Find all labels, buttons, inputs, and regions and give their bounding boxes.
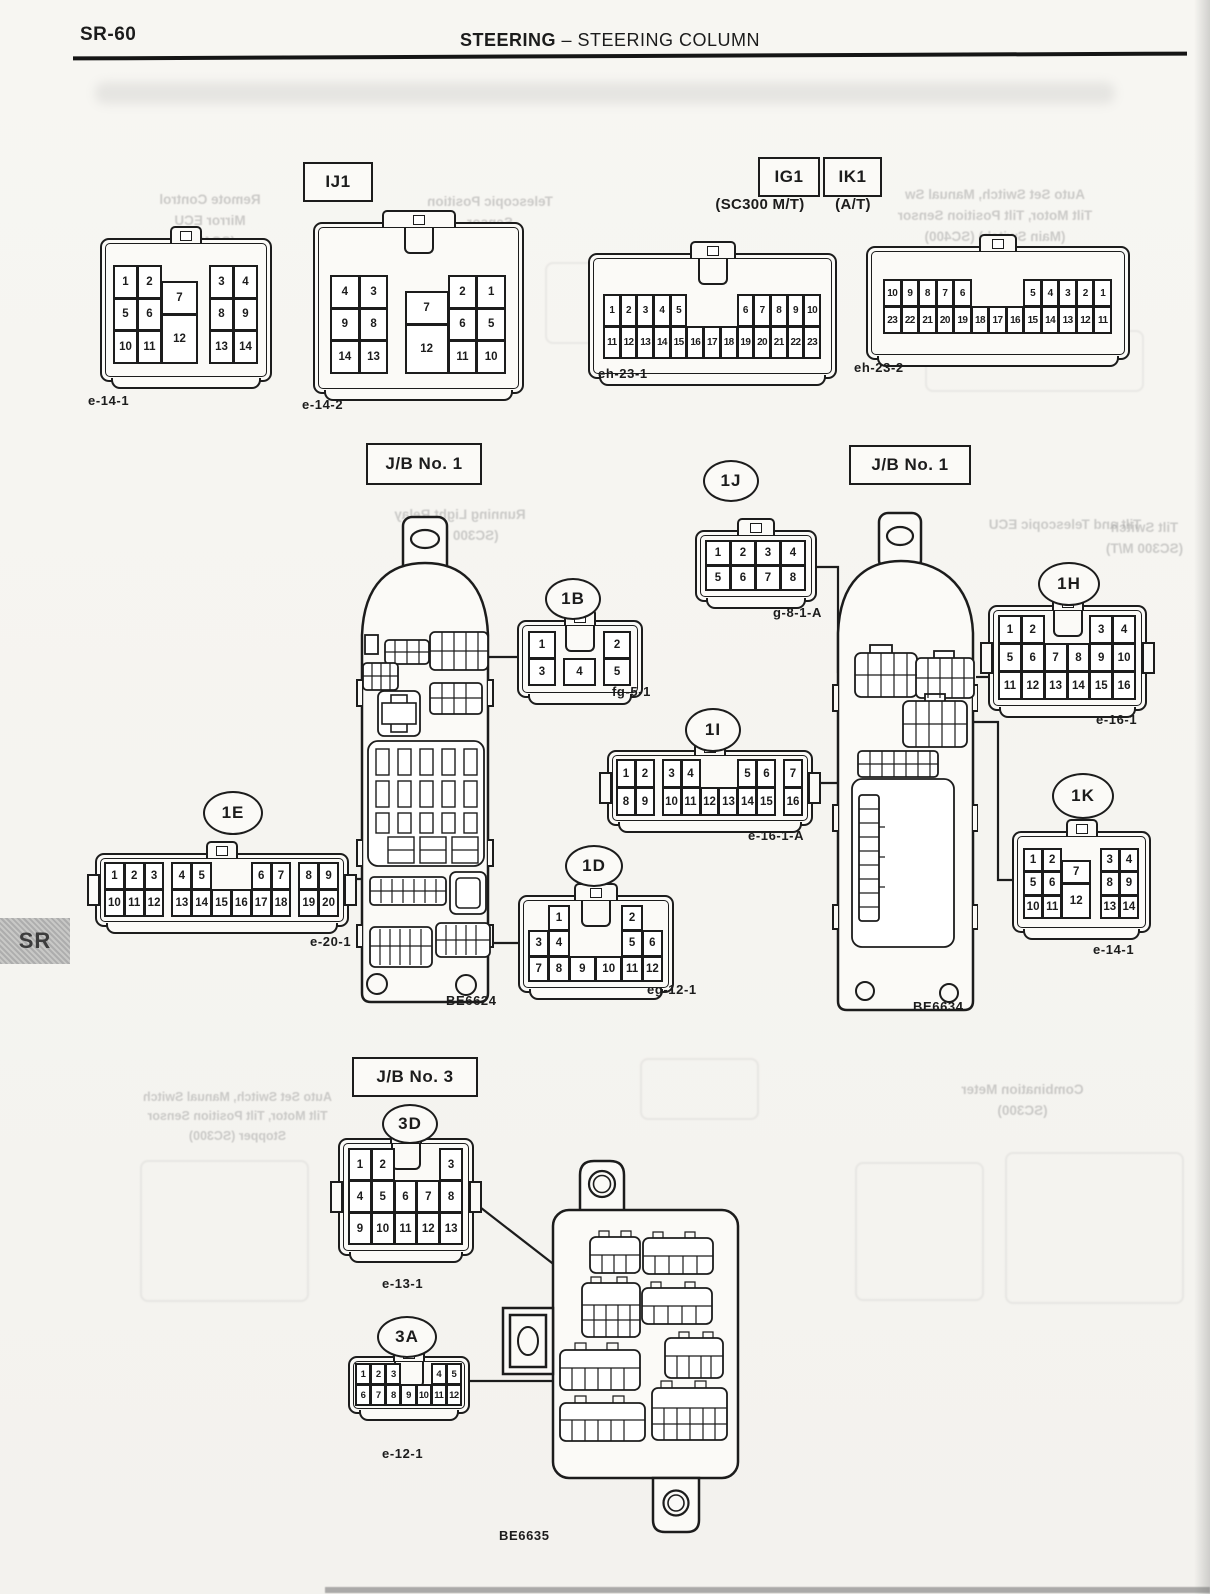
pin-19: 19: [737, 326, 755, 359]
pin-14: 14: [330, 340, 360, 374]
pin-6: 6: [642, 930, 663, 956]
pin-8: 8: [616, 787, 636, 816]
pin-4: 4: [1112, 615, 1136, 644]
pin-13: 13: [1058, 306, 1077, 334]
pin-15: 15: [756, 787, 776, 816]
pin-7: 7: [528, 956, 549, 982]
pin-9: 9: [1089, 643, 1113, 672]
pin-3: 3: [1089, 615, 1113, 644]
pin-18: 18: [271, 889, 292, 917]
pin-9: 9: [901, 279, 920, 307]
pin-12: 12: [161, 314, 198, 364]
pin-1: 1: [1093, 279, 1112, 307]
pin-10: 10: [803, 294, 821, 327]
code-label-e-16-1: e-16-1: [1096, 712, 1137, 727]
bleedthrough-text: Tilt Switch(SC300 M/T): [1082, 518, 1207, 560]
pin-9: 9: [569, 956, 596, 982]
ghost-text-line: (SC300): [930, 1101, 1115, 1122]
ghost-text-line: (SC300 M/T): [1082, 539, 1207, 560]
code-label-e-14-2: e-14-2: [302, 397, 343, 412]
pin-2: 2: [137, 265, 162, 299]
pin-16: 16: [1112, 671, 1136, 700]
ghost-text-line: Tilt Motor, Tilt Position Sensor: [855, 206, 1135, 227]
pin-7: 7: [370, 1384, 386, 1406]
pin-15: 15: [1089, 671, 1113, 700]
pin-3: 3: [359, 275, 389, 309]
pin-13: 13: [1100, 895, 1120, 919]
connector-ear: [808, 772, 821, 804]
header-rule: [73, 52, 1187, 61]
jb-no1-right-label: J/B No. 1: [849, 445, 971, 485]
pin-4: 4: [431, 1363, 447, 1385]
pin-23: 23: [803, 326, 821, 359]
connector-latch: [690, 241, 736, 258]
pin-3: 3: [755, 540, 781, 566]
code-label-e-20-1: e-20-1: [310, 934, 351, 949]
pin-9: 9: [233, 298, 258, 332]
connector-e-20-1: 1234567891011121314151617181920: [95, 853, 349, 927]
pin-19: 19: [298, 889, 319, 917]
connector-e-13-1: 12345678910111213: [338, 1138, 474, 1256]
pin-6: 6: [756, 759, 776, 788]
ghost-text-line: Auto Set Switch, Manual Sw: [855, 185, 1135, 206]
pin-9: 9: [400, 1384, 416, 1406]
pin-3: 3: [144, 862, 165, 890]
figure-code-be6634: BE6634: [913, 999, 964, 1014]
pin-8: 8: [548, 956, 569, 982]
subsection-title: – STEERING COLUMN: [556, 30, 760, 50]
jb-no3-label: J/B No. 3: [352, 1057, 478, 1097]
pin-2: 2: [1042, 848, 1062, 872]
pin-9: 9: [348, 1212, 372, 1245]
pin-11: 11: [681, 787, 701, 816]
pin-17: 17: [988, 306, 1007, 334]
code-label-e-14-1: e-14-1: [88, 393, 129, 408]
pin-5: 5: [670, 294, 688, 327]
pin-17: 17: [251, 889, 272, 917]
connector-ear: [1142, 642, 1155, 674]
pin-4: 4: [653, 294, 671, 327]
pin-16: 16: [1006, 306, 1025, 334]
pin-11: 11: [998, 671, 1022, 700]
pin-2: 2: [448, 275, 478, 309]
pin-2: 2: [124, 862, 145, 890]
pin-2: 2: [1076, 279, 1095, 307]
pin-5: 5: [621, 930, 642, 956]
code-label-g-8-1-a: g-8-1-A: [773, 605, 822, 620]
pin-17: 17: [703, 326, 721, 359]
pin-5: 5: [603, 658, 631, 686]
figure-code-be6624: BE6624: [446, 993, 497, 1008]
pin-16: 16: [783, 787, 803, 816]
section-title: STEERING: [460, 30, 556, 50]
connector-base: [111, 378, 261, 389]
pin-6: 6: [394, 1180, 418, 1213]
pin-10: 10: [416, 1384, 432, 1406]
connector-latch: [382, 210, 456, 227]
connector-latch: [206, 841, 238, 858]
connector-bubble-1e: 1E: [203, 791, 263, 835]
pin-14: 14: [653, 326, 671, 359]
pin-18: 18: [971, 306, 990, 334]
pin-20: 20: [318, 889, 339, 917]
pin-4: 4: [330, 275, 360, 309]
connector-e-14-1: 1256101171234891314: [100, 238, 272, 382]
pin-1: 1: [355, 1363, 371, 1385]
pin-3: 3: [662, 759, 682, 788]
pin-5: 5: [998, 643, 1022, 672]
pin-5: 5: [191, 862, 212, 890]
pin-1: 1: [616, 759, 636, 788]
pin-8: 8: [770, 294, 788, 327]
ghost-text-line: Mirror ECU: [130, 211, 290, 232]
pin-5: 5: [705, 565, 731, 591]
bleedthrough-shape: [855, 1162, 984, 1301]
junction-block-no1-left: [350, 505, 500, 1015]
pin-7: 7: [271, 862, 292, 890]
code-label-e-16-1-a: e-16-1-A: [748, 828, 804, 843]
code-label-eh-23-2: eh-23-2: [854, 360, 904, 375]
pin-4: 4: [348, 1180, 372, 1213]
pin-10: 10: [476, 340, 506, 374]
pin-9: 9: [330, 308, 360, 342]
pin-4: 4: [171, 862, 192, 890]
pin-12: 12: [405, 324, 449, 374]
pin-10: 10: [371, 1212, 395, 1245]
pin-13: 13: [209, 330, 234, 364]
connector-base: [529, 989, 663, 1000]
pin-10: 10: [113, 330, 138, 364]
pin-5: 5: [1023, 871, 1043, 895]
pin-8: 8: [439, 1180, 463, 1213]
page-code: SR-60: [80, 24, 136, 46]
pin-11: 11: [124, 889, 145, 917]
pin-10: 10: [1112, 643, 1136, 672]
pin-2: 2: [635, 759, 655, 788]
pin-4: 4: [1041, 279, 1060, 307]
bleedthrough-shape: [140, 1160, 309, 1302]
pin-11: 11: [137, 330, 162, 364]
pin-12: 12: [1076, 306, 1095, 334]
pin-6: 6: [1042, 871, 1062, 895]
connector-base: [877, 356, 1119, 367]
pin-7: 7: [161, 281, 198, 315]
connector-base: [359, 1410, 459, 1421]
pin-11: 11: [394, 1212, 418, 1245]
code-label-e-13-1: e-13-1: [382, 1276, 423, 1291]
connector-ear: [330, 1181, 343, 1213]
connector-bubble-1k: 1K: [1052, 773, 1114, 819]
pin-4: 4: [1119, 848, 1139, 872]
pin-10: 10: [1023, 895, 1043, 919]
pin-14: 14: [737, 787, 757, 816]
pin-9: 9: [1119, 871, 1139, 895]
connector-base: [1023, 929, 1140, 940]
connector-ear: [599, 772, 612, 804]
pin-7: 7: [405, 291, 449, 325]
pin-2: 2: [620, 294, 638, 327]
pin-8: 8: [209, 298, 234, 332]
junction-block-no3: [495, 1150, 755, 1550]
pin-5: 5: [476, 308, 506, 342]
connector-latch: [979, 234, 1017, 251]
pin-12: 12: [144, 889, 165, 917]
bleedthrough-shape: [640, 1058, 759, 1120]
pin-3: 3: [1100, 848, 1120, 872]
pin-21: 21: [918, 306, 937, 334]
pin-12: 12: [446, 1384, 462, 1406]
jb-no1-left-label: J/B No. 1: [366, 443, 482, 485]
pin-18: 18: [720, 326, 738, 359]
pin-5: 5: [737, 759, 757, 788]
scan-smudge: [95, 82, 1115, 104]
pin-16: 16: [686, 326, 704, 359]
junction-block-no1-right: [828, 505, 978, 1020]
connector-key: [404, 228, 434, 254]
pin-14: 14: [233, 330, 258, 364]
pin-7: 7: [1044, 643, 1068, 672]
pin-11: 11: [621, 956, 642, 982]
pin-15: 15: [1023, 306, 1042, 334]
connector-g-8-1-a: 12345678: [695, 530, 817, 602]
pin-3: 3: [528, 930, 549, 956]
pin-8: 8: [780, 565, 806, 591]
pin-15: 15: [211, 889, 232, 917]
pin-1: 1: [998, 615, 1022, 644]
code-label-e-12-1: e-12-1: [382, 1446, 423, 1461]
pin-3: 3: [385, 1363, 401, 1385]
pin-20: 20: [753, 326, 771, 359]
connector-bubble-1b: 1B: [545, 578, 601, 620]
pin-7: 7: [783, 759, 803, 788]
pin-13: 13: [1044, 671, 1068, 700]
pin-12: 12: [642, 956, 663, 982]
pin-5: 5: [371, 1180, 395, 1213]
pin-7: 7: [1061, 860, 1091, 884]
ghost-text-line: Remote Control: [130, 190, 290, 211]
pin-7: 7: [416, 1180, 440, 1213]
pin-10: 10: [595, 956, 622, 982]
pin-2: 2: [730, 540, 756, 566]
ghost-text-line: Combination Meter: [930, 1080, 1115, 1101]
pin-21: 21: [770, 326, 788, 359]
connector-base: [349, 1252, 463, 1263]
pin-9: 9: [318, 862, 339, 890]
connector-base: [324, 390, 513, 401]
pin-10: 10: [662, 787, 682, 816]
pin-4: 4: [681, 759, 701, 788]
pin-13: 13: [359, 340, 389, 374]
pin-2: 2: [1021, 615, 1045, 644]
connector-eg-12-1: 123456789101112: [518, 895, 674, 993]
connector-latch: [170, 226, 202, 243]
pin-6: 6: [953, 279, 972, 307]
page-edge-shadow: [1194, 0, 1210, 1594]
pin-6: 6: [1021, 643, 1045, 672]
pin-8: 8: [1067, 643, 1091, 672]
pin-11: 11: [603, 326, 621, 359]
connector-bubble-1i: 1I: [685, 708, 741, 752]
pin-3: 3: [1058, 279, 1077, 307]
bleedthrough-shape: [1005, 1152, 1184, 1304]
pin-19: 19: [953, 306, 972, 334]
pin-1: 1: [113, 265, 138, 299]
connector-e-12-1: 123456789101112: [348, 1356, 470, 1414]
connector-eh-23-2: 1098765432123222120191817161514131211: [866, 246, 1130, 360]
pin-3: 3: [209, 265, 234, 299]
connector-e-14-2: 4398141371221651110: [313, 222, 524, 394]
pin-1: 1: [104, 862, 125, 890]
connector-latch: [1066, 819, 1098, 836]
pin-7: 7: [753, 294, 771, 327]
pin-12: 12: [620, 326, 638, 359]
pin-2: 2: [370, 1363, 386, 1385]
connector-e-16-1: 12345678910111213141516: [988, 605, 1147, 711]
section-side-tab: SR: [0, 918, 70, 964]
pin-3: 3: [636, 294, 654, 327]
pin-8: 8: [298, 862, 319, 890]
pin-16: 16: [231, 889, 252, 917]
pin-11: 11: [448, 340, 478, 374]
pin-13: 13: [718, 787, 738, 816]
pin-12: 12: [416, 1212, 440, 1245]
pin-22: 22: [901, 306, 920, 334]
pin-13: 13: [171, 889, 192, 917]
ghost-text-line: Auto Set Switch, Manual Switch: [130, 1088, 345, 1107]
pin-7: 7: [755, 565, 781, 591]
code-label-fg-5-1: fg-5-1: [612, 684, 651, 699]
ghost-text-line: Tilt Switch: [1082, 518, 1207, 539]
pin-12: 12: [1061, 883, 1091, 919]
variant-note-sc300mt: (SC300 M/T): [698, 196, 822, 213]
pin-14: 14: [1041, 306, 1060, 334]
pin-6: 6: [355, 1384, 371, 1406]
ghost-text-line: Tilt Motor, Tilt Position Sensor: [130, 1107, 345, 1126]
pin-6: 6: [251, 862, 272, 890]
pin-11: 11: [431, 1384, 447, 1406]
connector-group-label-ik1: IK1: [823, 157, 882, 197]
code-label-eg-12-1: eg-12-1: [647, 982, 697, 997]
pin-6: 6: [737, 294, 755, 327]
pin-4: 4: [233, 265, 258, 299]
pin-9: 9: [635, 787, 655, 816]
pin-5: 5: [1023, 279, 1042, 307]
pin-3: 3: [439, 1148, 463, 1181]
connector-latch: [737, 518, 775, 535]
pin-1: 1: [548, 905, 569, 931]
pin-14: 14: [1067, 671, 1091, 700]
connector-key: [698, 259, 728, 285]
connector-e-16-1-a: 12345678910111213141516: [607, 750, 813, 826]
pin-4: 4: [548, 930, 569, 956]
pin-1: 1: [705, 540, 731, 566]
ghost-text-line: Stopper (SC300): [130, 1127, 345, 1146]
pin-2: 2: [371, 1148, 395, 1181]
scan-edge-strip: [325, 1587, 1210, 1593]
pin-10: 10: [883, 279, 902, 307]
connector-bubble-1d: 1D: [565, 845, 623, 887]
pin-13: 13: [439, 1212, 463, 1245]
pin-1: 1: [476, 275, 506, 309]
pin-7: 7: [936, 279, 955, 307]
pin-4: 4: [780, 540, 806, 566]
pin-8: 8: [359, 308, 389, 342]
pin-8: 8: [1100, 871, 1120, 895]
pin-11: 11: [1093, 306, 1112, 334]
pin-2: 2: [603, 631, 631, 659]
pin-2: 2: [621, 905, 642, 931]
pin-12: 12: [700, 787, 720, 816]
pin-9: 9: [787, 294, 805, 327]
pin-11: 11: [1042, 895, 1062, 919]
pin-12: 12: [1021, 671, 1045, 700]
pin-1: 1: [603, 294, 621, 327]
pin-13: 13: [636, 326, 654, 359]
connector-bubble-1j: 1J: [703, 460, 759, 502]
connector-bubble-3a: 3A: [377, 1316, 437, 1358]
connector-eh-23-1: 1234567891011121314151617181920212223: [588, 253, 837, 379]
variant-note-at: (A/T): [822, 196, 884, 213]
manual-page: Remote ControlMirror ECU(SC400) Telescop…: [0, 0, 1210, 1594]
pin-6: 6: [730, 565, 756, 591]
page-title: STEERING – STEERING COLUMN: [300, 30, 920, 51]
figure-code-be6635: BE6635: [499, 1528, 550, 1543]
connector-base: [106, 923, 338, 934]
pin-5: 5: [446, 1363, 462, 1385]
pin-8: 8: [918, 279, 937, 307]
bleedthrough-text: Combination Meter(SC300): [930, 1080, 1115, 1122]
pin-6: 6: [137, 298, 162, 332]
pin-1: 1: [528, 631, 556, 659]
connector-ear: [469, 1181, 482, 1213]
connector-e-14-1-right: 1256101171234891314: [1012, 831, 1151, 933]
pin-10: 10: [104, 889, 125, 917]
pin-1: 1: [1023, 848, 1043, 872]
code-label-eh-23-1: eh-23-1: [598, 366, 648, 381]
pin-5: 5: [113, 298, 138, 332]
pin-22: 22: [787, 326, 805, 359]
pin-15: 15: [670, 326, 688, 359]
connector-ear: [87, 874, 100, 906]
connector-bubble-3d: 3D: [382, 1104, 438, 1144]
pin-8: 8: [385, 1384, 401, 1406]
pin-3: 3: [528, 658, 556, 686]
code-label-e-14-1-right: e-14-1: [1093, 942, 1134, 957]
connector-bubble-1h: 1H: [1038, 562, 1100, 606]
pin-14: 14: [191, 889, 212, 917]
pin-23: 23: [883, 306, 902, 334]
pin-14: 14: [1119, 895, 1139, 919]
pin-4: 4: [563, 658, 596, 686]
pin-1: 1: [348, 1148, 372, 1181]
pin-20: 20: [936, 306, 955, 334]
connector-ear: [980, 642, 993, 674]
pin-6: 6: [448, 308, 478, 342]
bleedthrough-text: Auto Set Switch, Manual SwitchTilt Motor…: [130, 1088, 345, 1146]
connector-group-label-ij1: IJ1: [303, 162, 373, 202]
connector-group-label-ig1: IG1: [758, 157, 820, 197]
